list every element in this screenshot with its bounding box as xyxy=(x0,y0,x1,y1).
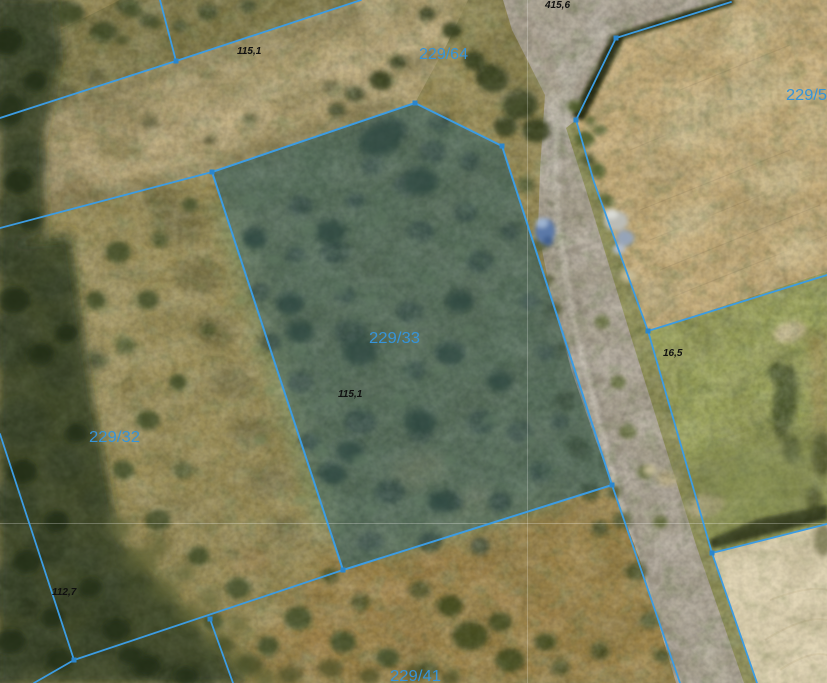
svg-text:112,7: 112,7 xyxy=(52,587,77,598)
svg-text:115,1: 115,1 xyxy=(237,46,262,57)
svg-text:229/41: 229/41 xyxy=(390,668,441,683)
svg-text:415,6: 415,6 xyxy=(544,0,570,11)
svg-text:115,1: 115,1 xyxy=(338,389,363,400)
svg-text:229/5: 229/5 xyxy=(786,87,827,104)
svg-text:16,5: 16,5 xyxy=(663,348,683,359)
svg-text:229/33: 229/33 xyxy=(369,330,420,347)
svg-text:229/32: 229/32 xyxy=(89,429,140,446)
svg-text:229/64: 229/64 xyxy=(419,46,468,63)
